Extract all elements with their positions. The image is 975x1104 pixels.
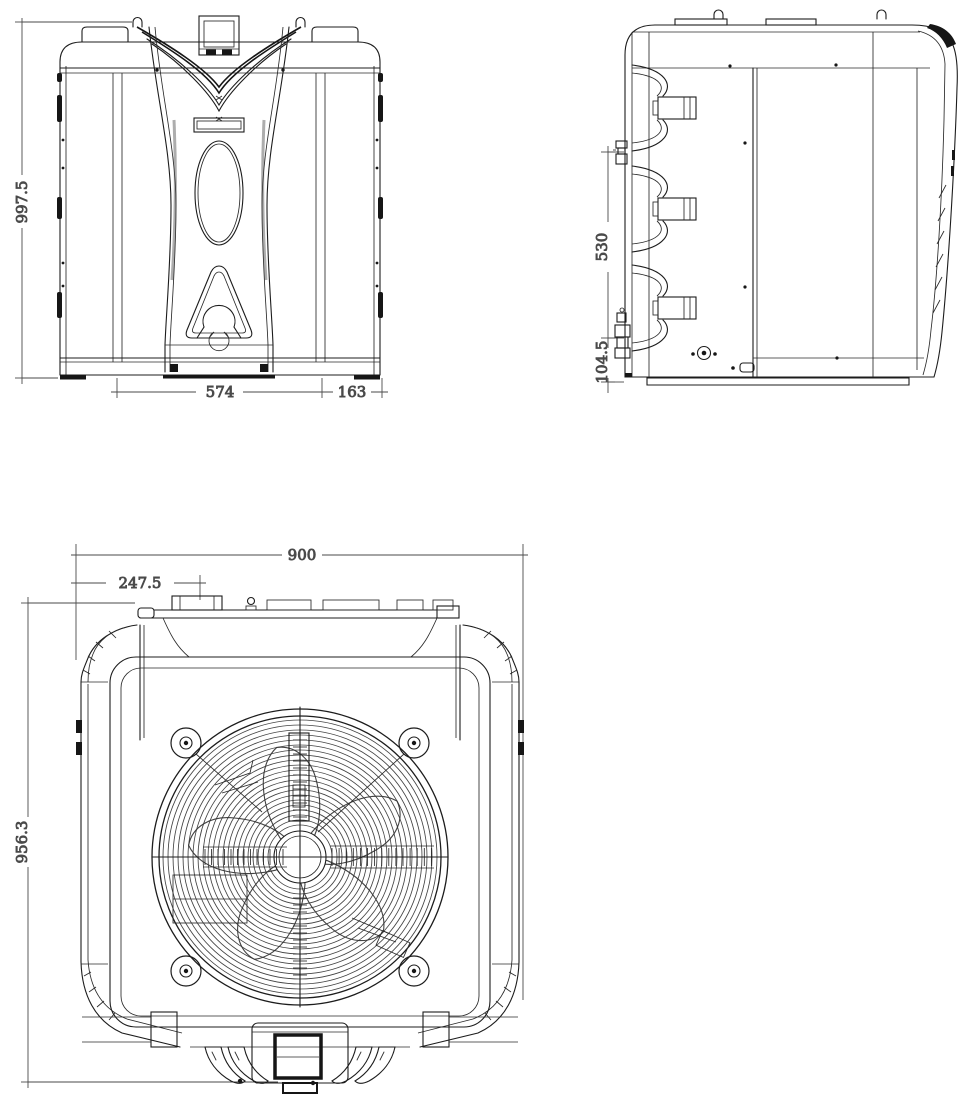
front-center-column — [149, 27, 289, 372]
side-base-plate — [647, 378, 909, 385]
side-dim-base-height-label: 104.5 — [593, 341, 611, 384]
side-water-connection — [615, 308, 630, 358]
plan-dim-overall-depth-label: 956.3 — [13, 821, 31, 864]
side-drain-fitting — [625, 347, 754, 378]
front-dim-base-width: 574 163 — [111, 378, 388, 401]
pipe-clamp — [632, 166, 696, 252]
technical-drawing-canvas: 997.5 — [0, 0, 975, 1104]
fan-assembly — [152, 707, 448, 1007]
plan-dim-overall-depth: 956.3 — [13, 597, 278, 1088]
front-dim-base-width-label: 574 — [206, 383, 235, 401]
side-dim-base-height: 104.5 — [593, 338, 624, 393]
side-pipe-clamps — [632, 65, 696, 351]
front-badge — [194, 118, 244, 132]
side-body-shell — [625, 10, 957, 377]
front-hook-right — [296, 18, 305, 28]
plan-knob — [248, 598, 255, 605]
front-view-drawing: 997.5 — [0, 0, 420, 420]
front-triangle-vent — [186, 266, 252, 351]
front-body-shell — [60, 18, 380, 376]
side-dim-connection-span: 530 — [593, 146, 624, 338]
front-dim-base-right-label: 163 — [338, 383, 367, 401]
front-oval-emblem — [195, 141, 243, 245]
pipe-clamp — [632, 65, 696, 151]
plan-view-drawing: 900 247.5 956.3 — [0, 530, 560, 1104]
plan-dim-display-offset-label: 247.5 — [119, 574, 162, 592]
side-view-drawing: 530 104.5 — [580, 0, 975, 400]
front-dim-height-label: 997.5 — [13, 181, 31, 224]
pipe-clamp — [632, 265, 696, 351]
plan-dim-overall-width-label: 900 — [288, 546, 317, 564]
plan-top-strip — [138, 596, 459, 618]
plan-display-tab — [172, 596, 222, 610]
bottom-connector — [238, 1023, 348, 1093]
side-dim-connection-span-label: 530 — [593, 233, 611, 262]
side-hook-right — [877, 10, 886, 19]
front-base — [60, 345, 380, 380]
front-v-ribbons — [137, 27, 301, 121]
side-hook-left — [714, 10, 723, 19]
front-hook-left — [133, 18, 142, 28]
front-display-controller — [199, 16, 239, 55]
